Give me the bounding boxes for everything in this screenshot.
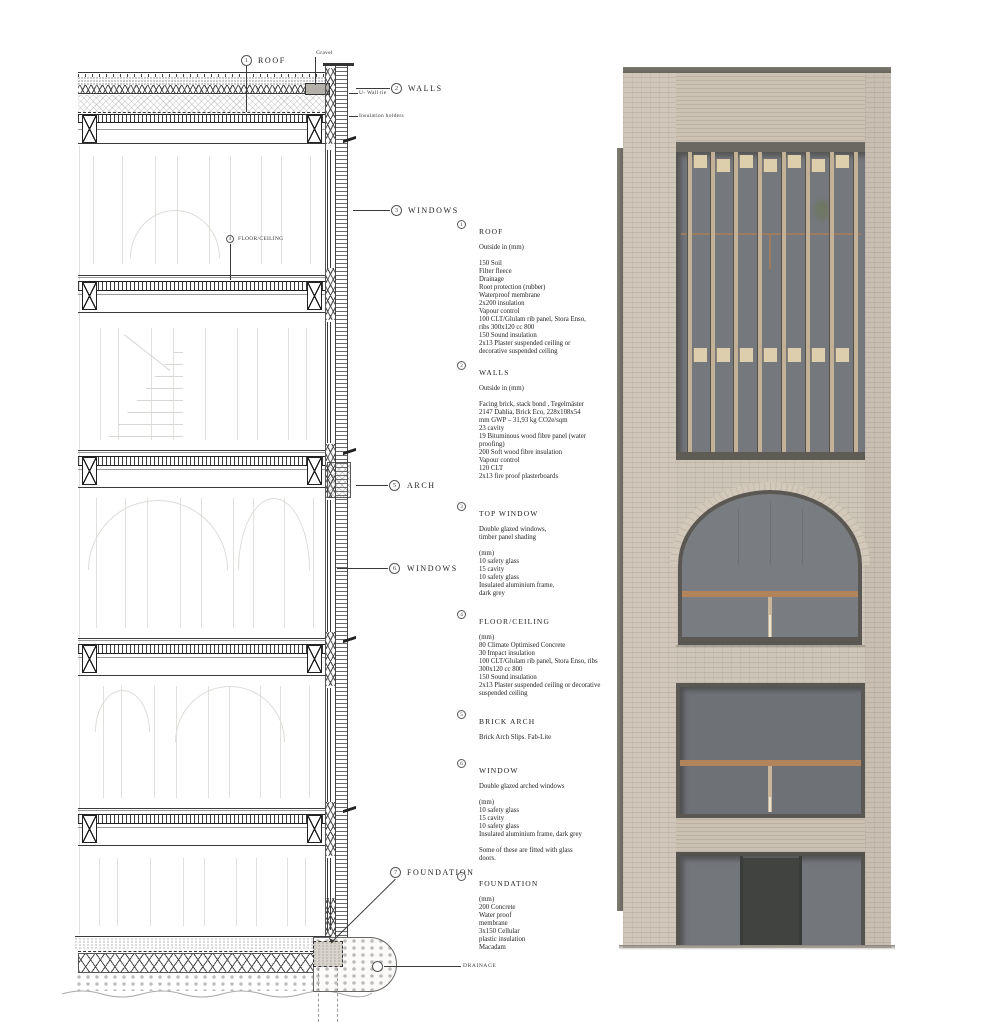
roof-beam-left	[82, 115, 97, 143]
floor-assembly-part	[82, 457, 97, 485]
section-window-glass	[330, 688, 331, 802]
floor-assembly-part	[78, 452, 325, 453]
section-window-glass	[330, 500, 331, 632]
interior-line	[183, 858, 184, 926]
upper-window-sill-band	[676, 452, 865, 460]
arch-glass-division	[738, 509, 739, 565]
leader-floor-ceiling	[230, 244, 231, 280]
interior-line	[204, 858, 205, 926]
timber-fin	[733, 152, 738, 460]
drain-pipe-line	[337, 968, 338, 1022]
callout-arch-label: ARCH	[407, 481, 436, 490]
callout-floor-ceiling-label: FLOOR/CEILING	[238, 236, 283, 242]
timber-fin	[853, 152, 858, 460]
floor-assembly-part	[78, 808, 325, 809]
interior-line	[233, 498, 234, 628]
callout-roof-number: 1	[241, 55, 252, 66]
callout-floor-ceiling-number: 4	[226, 235, 234, 243]
upper-window	[676, 152, 865, 460]
interior-line	[281, 156, 282, 264]
leader-walls	[356, 88, 390, 89]
roof-insulation-layer	[78, 95, 325, 112]
roof-soil-layer	[78, 77, 325, 85]
interior-line	[257, 328, 258, 440]
floor-assembly-part	[78, 814, 325, 824]
timber-shading-panel	[787, 348, 801, 362]
arch-mullion-highlight	[769, 615, 771, 637]
floor-assembly-part	[78, 638, 325, 639]
spec-number-icon: 7	[457, 872, 466, 881]
leader-wall-tie	[349, 93, 358, 94]
timber-fin	[757, 152, 762, 460]
arch-window-glass-bottom	[682, 565, 858, 637]
section-window-glass	[330, 150, 331, 268]
interior-line	[154, 686, 155, 798]
spec-title: BRICK ARCH	[479, 717, 535, 726]
interior-arch	[238, 498, 310, 570]
callout-windows-top-label: WINDOWS	[408, 206, 459, 215]
floor-assembly-part	[78, 827, 325, 828]
callout-walls-number: 2	[391, 83, 402, 94]
interior-line	[313, 498, 314, 628]
timber-fin	[829, 152, 834, 460]
drainage-marker	[372, 961, 383, 972]
interior-line	[93, 156, 94, 264]
roof-vapour-control	[78, 112, 325, 113]
interior-line	[100, 328, 101, 440]
spec-number-icon: 5	[457, 710, 466, 719]
section-window-glass	[330, 322, 331, 443]
timber-shading-panel	[763, 159, 777, 172]
section-brick-arch	[327, 462, 351, 498]
timber-shading-panel	[835, 155, 849, 168]
wall-insulation-band	[326, 632, 335, 686]
spec-title: WALLS	[479, 368, 510, 377]
callout-windows-top-number: 3	[391, 205, 402, 216]
spec-title: WINDOW	[479, 766, 519, 775]
interior-line	[309, 686, 310, 798]
interior-arch	[88, 500, 228, 570]
leader-windows-top	[353, 210, 390, 211]
architectural-sheet: 1 ROOF Gravel 2 WALLS U- Wall tie Insula…	[0, 0, 985, 1024]
roof-line	[78, 129, 325, 130]
gravel-label: Gravel	[316, 50, 333, 56]
facade-right-pier	[865, 73, 891, 948]
wall-tie-label: U- Wall tie	[359, 90, 387, 96]
spec-number-icon: 1	[457, 220, 466, 229]
roof-ceiling-line	[78, 143, 325, 144]
interior-line	[306, 328, 307, 440]
section-window-glass	[327, 500, 328, 632]
callout-windows-mid-number: 6	[389, 563, 400, 574]
timber-fin	[781, 152, 786, 460]
drain-pipe-line	[318, 968, 319, 1022]
floor-assembly-part	[307, 645, 322, 673]
floor-assembly-part	[78, 277, 325, 278]
interior-line	[305, 858, 306, 926]
callout-roof-label: ROOF	[258, 56, 286, 65]
facade-render	[617, 64, 895, 964]
interior-line	[205, 328, 206, 440]
floor-assembly-part	[78, 657, 325, 658]
arch-glass-division	[770, 502, 771, 565]
interior-line	[150, 858, 151, 926]
foundation-footing	[313, 941, 343, 967]
floor-assembly-part	[307, 282, 322, 310]
floor-assembly-part	[78, 450, 325, 451]
floor-assembly-part	[78, 640, 325, 641]
section-window-glass	[330, 858, 331, 930]
floor-assembly-part	[78, 281, 325, 291]
roof-line	[78, 93, 325, 94]
timber-shading-panel	[787, 155, 801, 168]
floor-assembly-part	[307, 457, 322, 485]
interior-line	[287, 858, 288, 926]
floor-assembly-part	[82, 815, 97, 843]
arch-glass-division	[802, 509, 803, 565]
interior-stair-rail	[124, 334, 170, 370]
floor-assembly-part	[78, 845, 325, 846]
slab-concrete	[75, 938, 331, 950]
timber-shading-panel	[811, 348, 825, 362]
spec-title: ROOF	[479, 227, 503, 236]
floor-assembly-part	[78, 810, 325, 811]
timber-shading-panel	[835, 348, 849, 362]
spec-number-icon: 6	[457, 759, 466, 768]
timber-shading-panel	[716, 159, 730, 172]
facade-left-pier	[623, 73, 676, 948]
spec-number-icon: 4	[457, 610, 466, 619]
interior-line	[310, 156, 311, 264]
interior-line	[117, 858, 118, 926]
floor-assembly-part	[78, 487, 325, 488]
floor-assembly-part	[78, 275, 325, 276]
interior-line	[288, 328, 289, 440]
floor-assembly-part	[78, 469, 325, 470]
facade-brick-band	[676, 818, 865, 852]
door-frame-right	[799, 856, 802, 945]
spec-title: TOP WINDOW	[479, 509, 538, 518]
timber-shading-panel	[811, 159, 825, 172]
interior-arch	[175, 686, 285, 742]
upper-window-head-band	[676, 142, 865, 152]
timber-shading-panel	[763, 348, 777, 362]
wall-insulation-parapet	[326, 68, 335, 144]
section-window-glass	[327, 150, 328, 268]
roof-top-line	[78, 72, 325, 73]
timber-shading-panel	[693, 155, 707, 168]
roof-drainage-layer	[78, 85, 325, 93]
foundation-membrane	[78, 951, 318, 952]
leader-roof	[246, 66, 247, 112]
middle-mullion-highlight	[769, 797, 771, 812]
leader-arch	[356, 485, 388, 486]
roof-clt-layer	[78, 114, 325, 123]
arch-sill-shadow	[676, 645, 865, 647]
interior-line	[237, 328, 238, 440]
floor-assembly-part	[307, 815, 322, 843]
roof-beam-right	[307, 115, 322, 143]
insulation-holders-label: Insulation holders	[359, 113, 404, 119]
leader-gravel	[315, 57, 316, 85]
wall-insulation-band	[326, 802, 335, 856]
section-window-glass	[327, 858, 328, 930]
facade-top-spandrel	[676, 73, 865, 145]
spec-number-icon: 3	[457, 502, 466, 511]
spec-title: FOUNDATION	[479, 879, 538, 888]
spec-number-icon: 2	[457, 361, 466, 370]
timber-fin	[710, 152, 715, 460]
interior-line	[236, 858, 237, 926]
timber-fin	[805, 152, 810, 460]
interior-line	[99, 858, 100, 926]
foundation-insulation	[78, 953, 318, 973]
interior-stairs	[108, 340, 183, 438]
floor-assembly-part	[82, 282, 97, 310]
spec-title: FLOOR/CEILING	[479, 617, 550, 626]
timber-shading-panel	[739, 348, 753, 362]
floor-assembly-part	[78, 294, 325, 295]
leader-drainage	[384, 966, 461, 967]
leader-windows-mid	[337, 568, 388, 569]
callout-foundation-number: 7	[390, 867, 401, 878]
section-window-glass	[327, 322, 328, 443]
interior-line	[261, 156, 262, 264]
interior-line	[280, 686, 281, 798]
timber-fin	[687, 152, 692, 460]
timber-shading-panel	[693, 348, 707, 362]
floor-assembly-part	[78, 644, 325, 654]
interior-line	[122, 156, 123, 264]
callout-windows-mid-label: WINDOWS	[407, 564, 458, 573]
wall-insulation-band	[326, 268, 335, 320]
leader-insulation-holders	[349, 116, 358, 117]
facade-fins	[676, 152, 865, 460]
timber-shading-panel	[739, 155, 753, 168]
interior-arch	[130, 210, 220, 258]
timber-shading-panel	[716, 348, 730, 362]
floor-assembly-part	[78, 312, 325, 313]
interior-line	[176, 686, 177, 798]
slab-top-line	[75, 936, 331, 937]
callout-walls-label: WALLS	[408, 84, 443, 93]
middle-window-glass	[680, 687, 861, 814]
interior-line	[118, 328, 119, 440]
floor-assembly-part	[82, 645, 97, 673]
interior-line	[256, 858, 257, 926]
floor-assembly-part	[78, 675, 325, 676]
facade-ground-shadow	[619, 945, 895, 950]
callout-arch-number: 5	[389, 480, 400, 491]
section-window-glass	[327, 688, 328, 802]
floor-assembly-part	[78, 456, 325, 466]
entrance-door	[743, 858, 799, 945]
